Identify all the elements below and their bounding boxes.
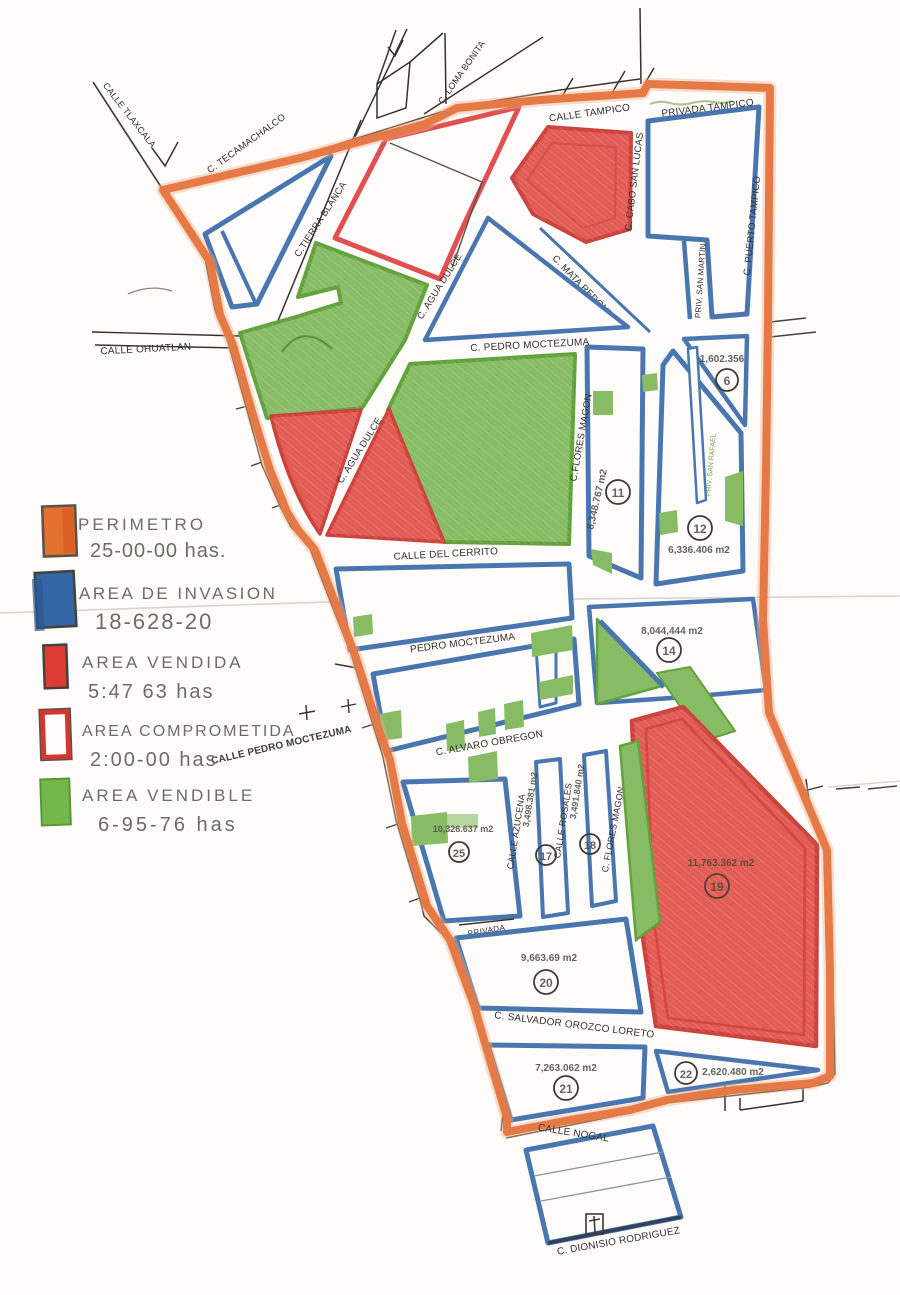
svg-text:17: 17	[540, 851, 552, 863]
svg-text:18: 18	[584, 840, 596, 852]
svg-text:6-95-76 has: 6-95-76 has	[98, 814, 238, 836]
svg-text:11: 11	[612, 486, 625, 500]
svg-text:6: 6	[724, 374, 731, 388]
svg-text:7,263.062 m2: 7,263.062 m2	[535, 1063, 597, 1074]
svg-text:AREA DE INVASION: AREA DE INVASION	[79, 584, 277, 603]
svg-text:PERIMETRO: PERIMETRO	[78, 515, 206, 534]
svg-text:8,044,444 m2: 8,044,444 m2	[641, 626, 703, 637]
svg-text:AREA VENDIBLE: AREA VENDIBLE	[82, 786, 255, 805]
svg-text:21: 21	[559, 1082, 573, 1096]
svg-text:11,763.362 m2: 11,763.362 m2	[688, 858, 755, 869]
svg-text:20: 20	[539, 976, 553, 990]
svg-text:25-00-00 has.: 25-00-00 has.	[90, 540, 226, 562]
svg-text:1,602.356: 1,602.356	[700, 354, 745, 365]
svg-text:5:47 63 has: 5:47 63 has	[88, 681, 215, 703]
svg-text:12: 12	[693, 522, 707, 536]
svg-text:25: 25	[453, 848, 465, 860]
svg-text:2,620.480 m2: 2,620.480 m2	[702, 1067, 764, 1078]
svg-text:19: 19	[710, 880, 724, 894]
svg-text:10,326.637 m2: 10,326.637 m2	[433, 824, 494, 834]
svg-text:18-628-20: 18-628-20	[95, 609, 213, 634]
svg-text:AREA COMPROMETIDA: AREA COMPROMETIDA	[82, 723, 296, 740]
svg-text:6,336.406 m2: 6,336.406 m2	[668, 545, 730, 556]
svg-text:9,663.69 m2: 9,663.69 m2	[521, 953, 578, 964]
svg-text:22: 22	[680, 1069, 692, 1081]
svg-text:2:00-00 has: 2:00-00 has	[90, 749, 218, 771]
svg-text:14: 14	[662, 644, 676, 658]
svg-text:AREA VENDIDA: AREA VENDIDA	[82, 653, 244, 672]
